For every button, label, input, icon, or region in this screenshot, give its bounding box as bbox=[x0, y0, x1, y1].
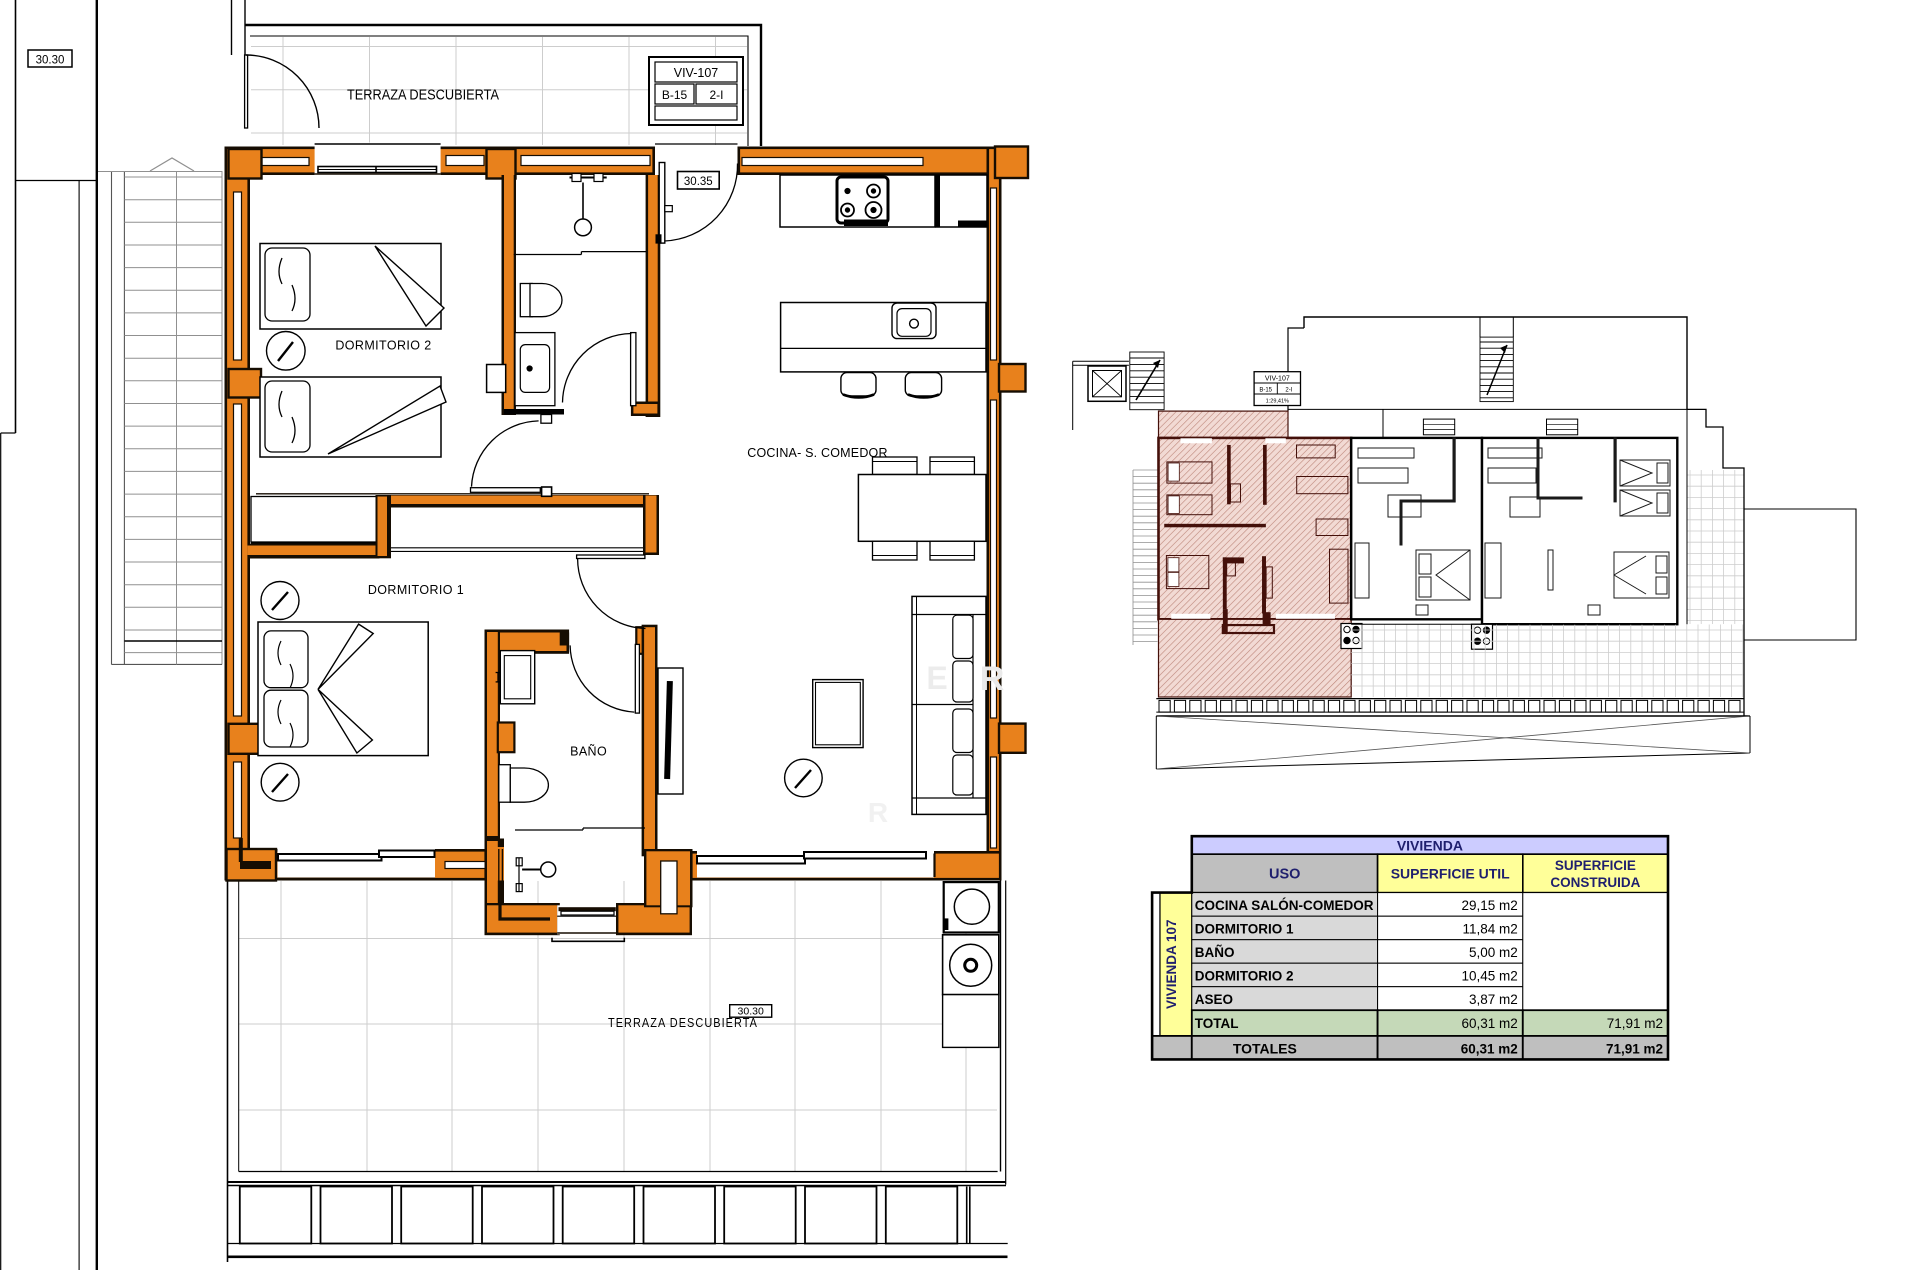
svg-text:COCINA SALÓN-COMEDOR: COCINA SALÓN-COMEDOR bbox=[1195, 898, 1374, 913]
svg-text:CONSTRUIDA: CONSTRUIDA bbox=[1550, 875, 1640, 890]
svg-text:B-15: B-15 bbox=[1259, 388, 1272, 394]
svg-text:29,15 m2: 29,15 m2 bbox=[1462, 898, 1518, 913]
svg-text:B-15: B-15 bbox=[662, 88, 688, 102]
svg-text:R: R bbox=[868, 797, 888, 828]
svg-text:11,84 m2: 11,84 m2 bbox=[1463, 922, 1518, 937]
svg-text:TERRAZA DESCUBIERTA: TERRAZA DESCUBIERTA bbox=[608, 1016, 758, 1030]
svg-text:30.35: 30.35 bbox=[684, 176, 713, 188]
svg-text:E: E bbox=[926, 660, 947, 696]
svg-text:VIV-107: VIV-107 bbox=[1265, 376, 1290, 383]
svg-text:COCINA- S. COMEDOR: COCINA- S. COMEDOR bbox=[747, 446, 887, 460]
svg-text:TOTALES: TOTALES bbox=[1233, 1040, 1297, 1056]
svg-text:71,91 m2: 71,91 m2 bbox=[1606, 1041, 1663, 1056]
svg-text:R: R bbox=[980, 660, 1005, 698]
svg-text:5,00 m2: 5,00 m2 bbox=[1469, 945, 1518, 960]
svg-text:60,31 m2: 60,31 m2 bbox=[1461, 1041, 1518, 1056]
svg-text:USO: USO bbox=[1269, 867, 1300, 883]
svg-text:3,87 m2: 3,87 m2 bbox=[1469, 992, 1518, 1007]
svg-text:SUPERFICIE: SUPERFICIE bbox=[1555, 858, 1636, 873]
svg-text:60,31 m2: 60,31 m2 bbox=[1462, 1016, 1518, 1031]
svg-text:ASEO: ASEO bbox=[1195, 992, 1233, 1007]
svg-text:DORMITORIO 2: DORMITORIO 2 bbox=[335, 339, 431, 353]
svg-text:1:29,41%: 1:29,41% bbox=[1266, 399, 1289, 405]
svg-text:2-I: 2-I bbox=[1285, 388, 1292, 394]
svg-text:VIV-107: VIV-107 bbox=[674, 66, 719, 80]
svg-text:BAÑO: BAÑO bbox=[1195, 945, 1235, 960]
svg-text:VIVIENDA: VIVIENDA bbox=[1397, 838, 1463, 854]
svg-text:2-I: 2-I bbox=[709, 88, 723, 102]
svg-text:TERRAZA DESCUBIERTA: TERRAZA DESCUBIERTA bbox=[347, 88, 499, 104]
svg-text:DORMITORIO 1: DORMITORIO 1 bbox=[1195, 922, 1294, 937]
svg-text:10,45 m2: 10,45 m2 bbox=[1462, 969, 1518, 984]
svg-text:30.30: 30.30 bbox=[738, 1006, 764, 1018]
svg-text:VIVIENDA 107: VIVIENDA 107 bbox=[1164, 919, 1179, 1009]
svg-text:SUPERFICIE UTIL: SUPERFICIE UTIL bbox=[1391, 866, 1510, 882]
svg-text:TOTAL: TOTAL bbox=[1195, 1016, 1239, 1031]
svg-text:DORMITORIO 1: DORMITORIO 1 bbox=[368, 583, 464, 597]
svg-text:30.30: 30.30 bbox=[36, 55, 65, 67]
svg-text:71,91 m2: 71,91 m2 bbox=[1607, 1016, 1663, 1031]
svg-text:BAÑO: BAÑO bbox=[570, 745, 607, 759]
svg-text:DORMITORIO 2: DORMITORIO 2 bbox=[1195, 969, 1294, 984]
